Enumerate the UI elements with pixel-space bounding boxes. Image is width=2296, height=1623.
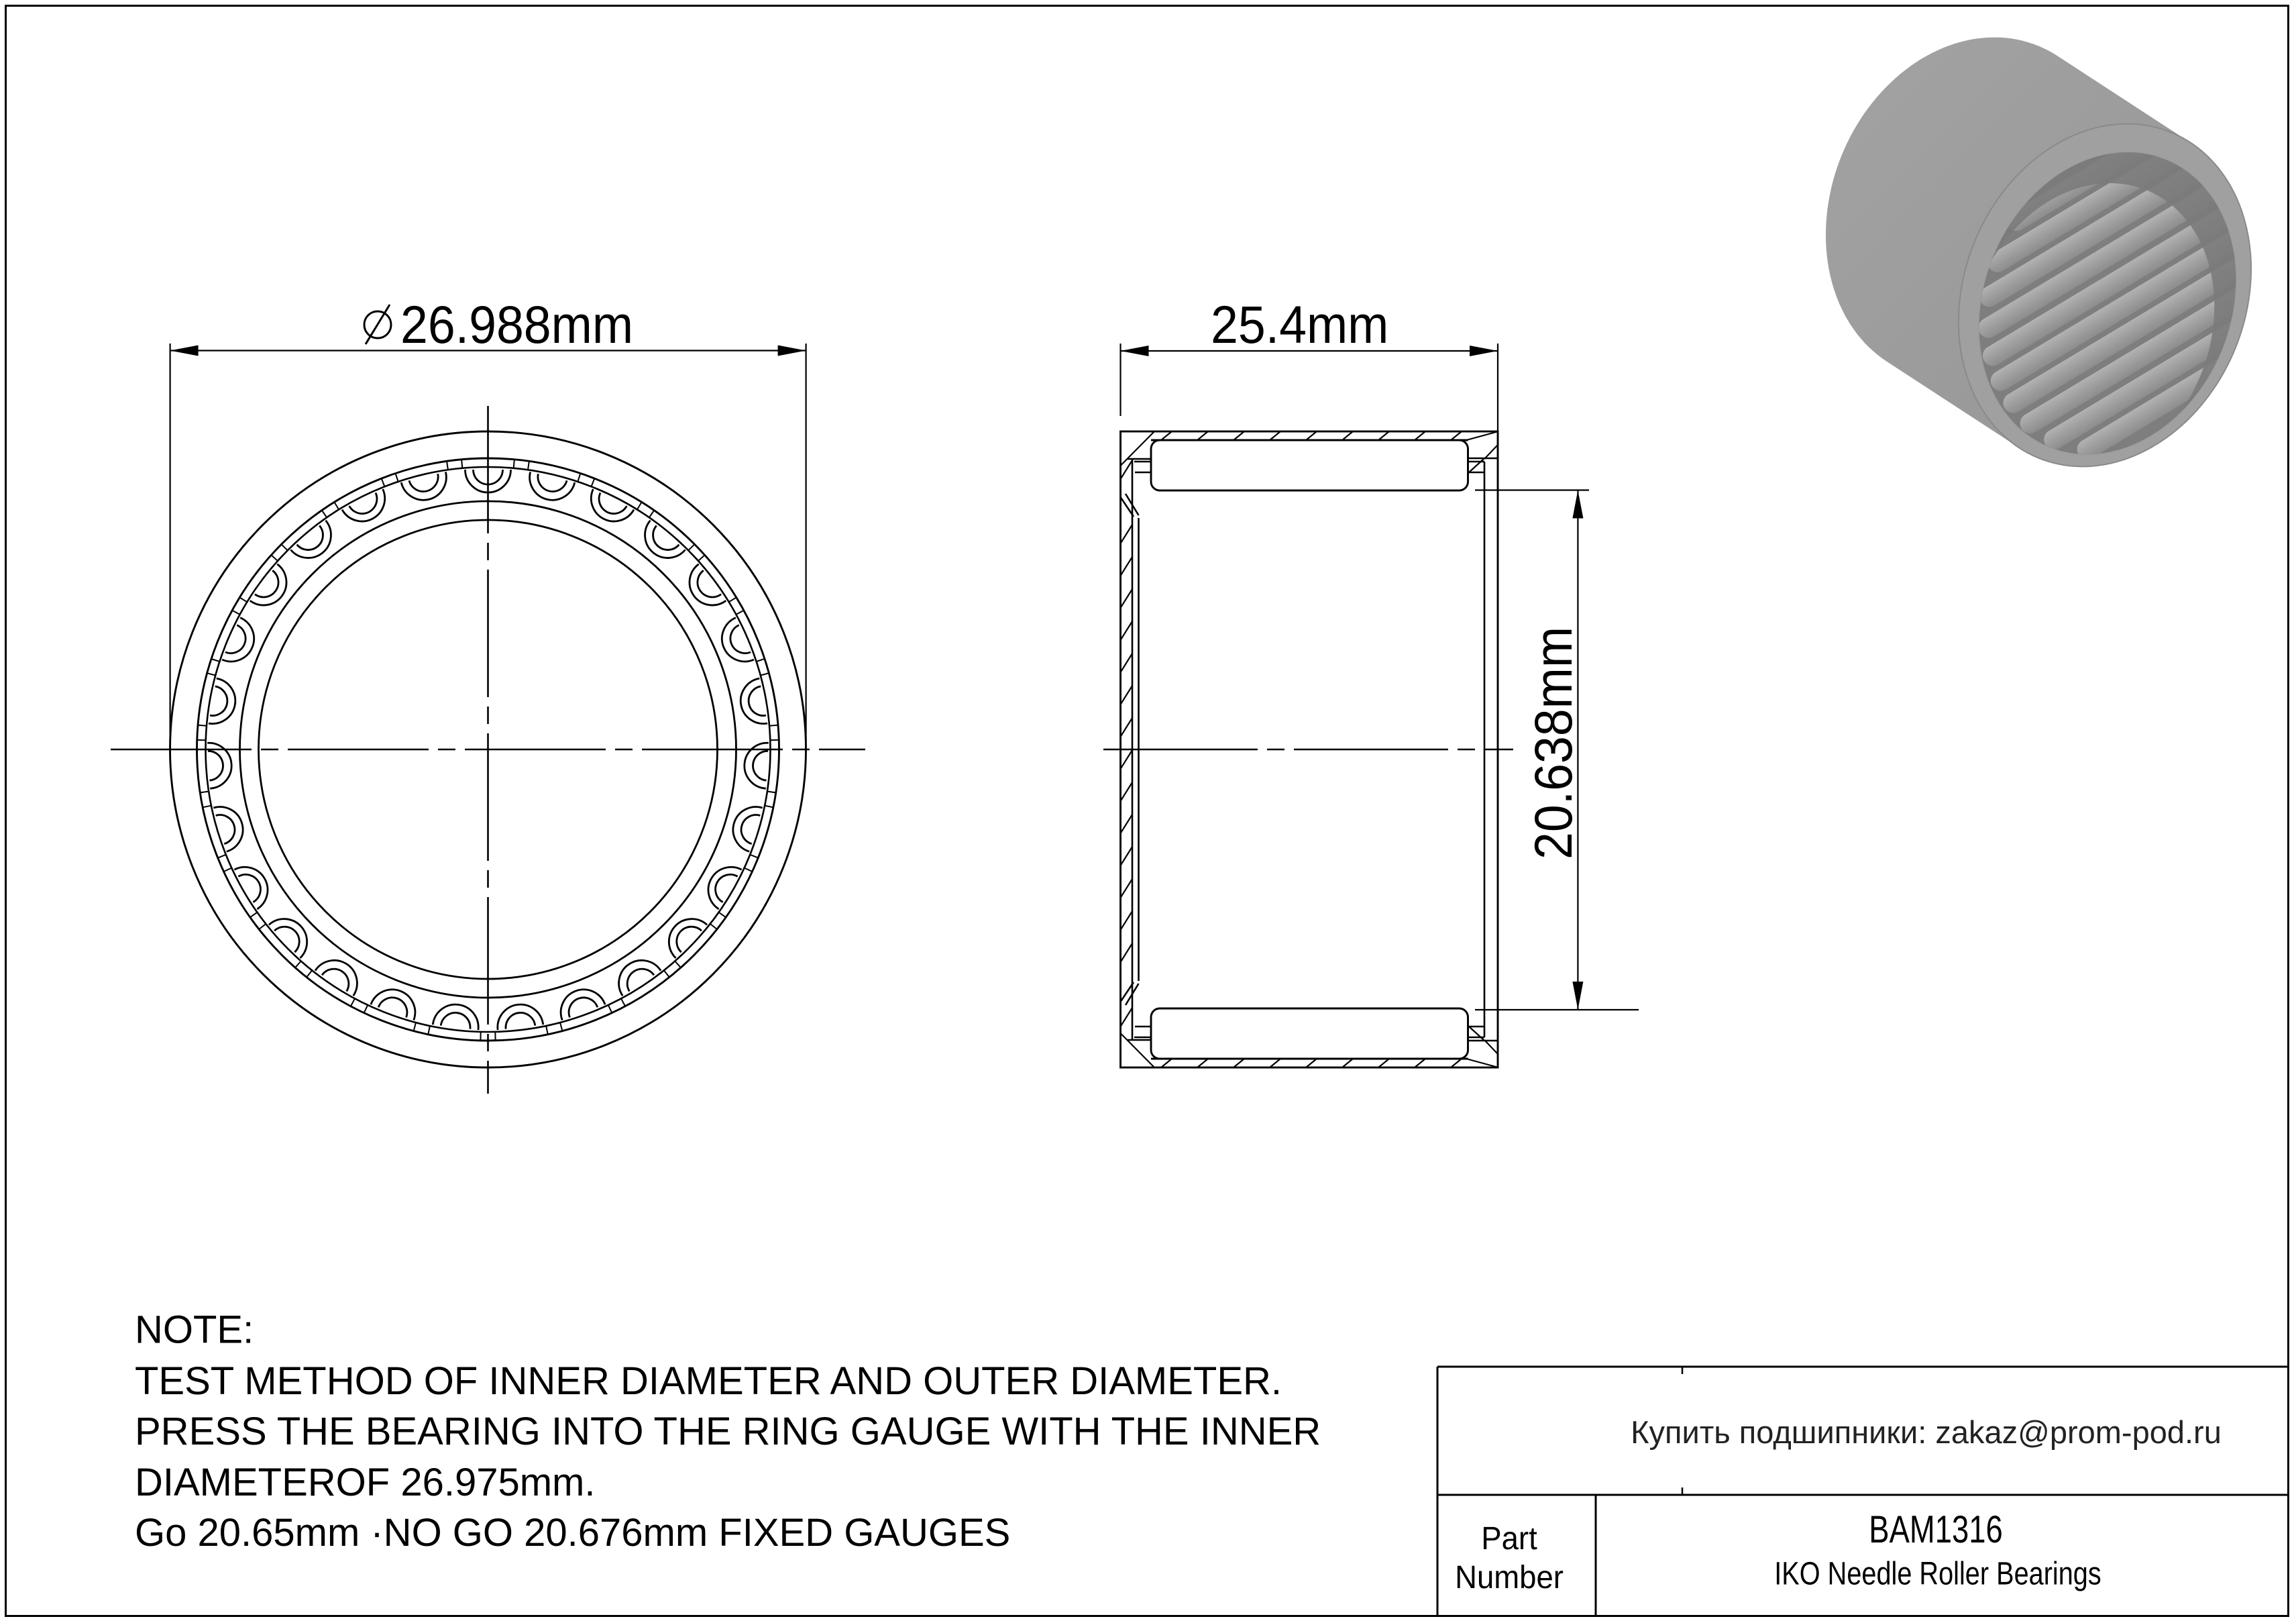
svg-text:DIAMETEROF 26.975mm.: DIAMETEROF 26.975mm. xyxy=(135,1461,595,1504)
svg-text:Number: Number xyxy=(1455,1559,1564,1595)
svg-text:Go 20.65mm ·NO GO 20.676mm FIX: Go 20.65mm ·NO GO 20.676mm FIXED GAUGES xyxy=(135,1511,1010,1555)
svg-text:20.638mm: 20.638mm xyxy=(1525,627,1584,859)
svg-text:Купить подшипники: zakaz@prom-: Купить подшипники: zakaz@prom-pod.ru xyxy=(1631,1414,2222,1450)
svg-text:TEST METHOD OF INNER DIAMETER: TEST METHOD OF INNER DIAMETER AND OUTER … xyxy=(135,1359,1282,1403)
svg-text:BAM1316: BAM1316 xyxy=(1869,1508,2002,1551)
svg-text:IKO Needle Roller Bearings: IKO Needle Roller Bearings xyxy=(1774,1556,2101,1592)
svg-text:Part: Part xyxy=(1481,1520,1537,1557)
svg-text:25.4mm: 25.4mm xyxy=(1211,296,1388,355)
svg-text:26.988mm: 26.988mm xyxy=(400,296,633,355)
svg-text:PRESS THE BEARING INTO THE RIN: PRESS THE BEARING INTO THE RING GAUGE WI… xyxy=(135,1410,1321,1453)
svg-text:NOTE:: NOTE: xyxy=(135,1308,254,1352)
